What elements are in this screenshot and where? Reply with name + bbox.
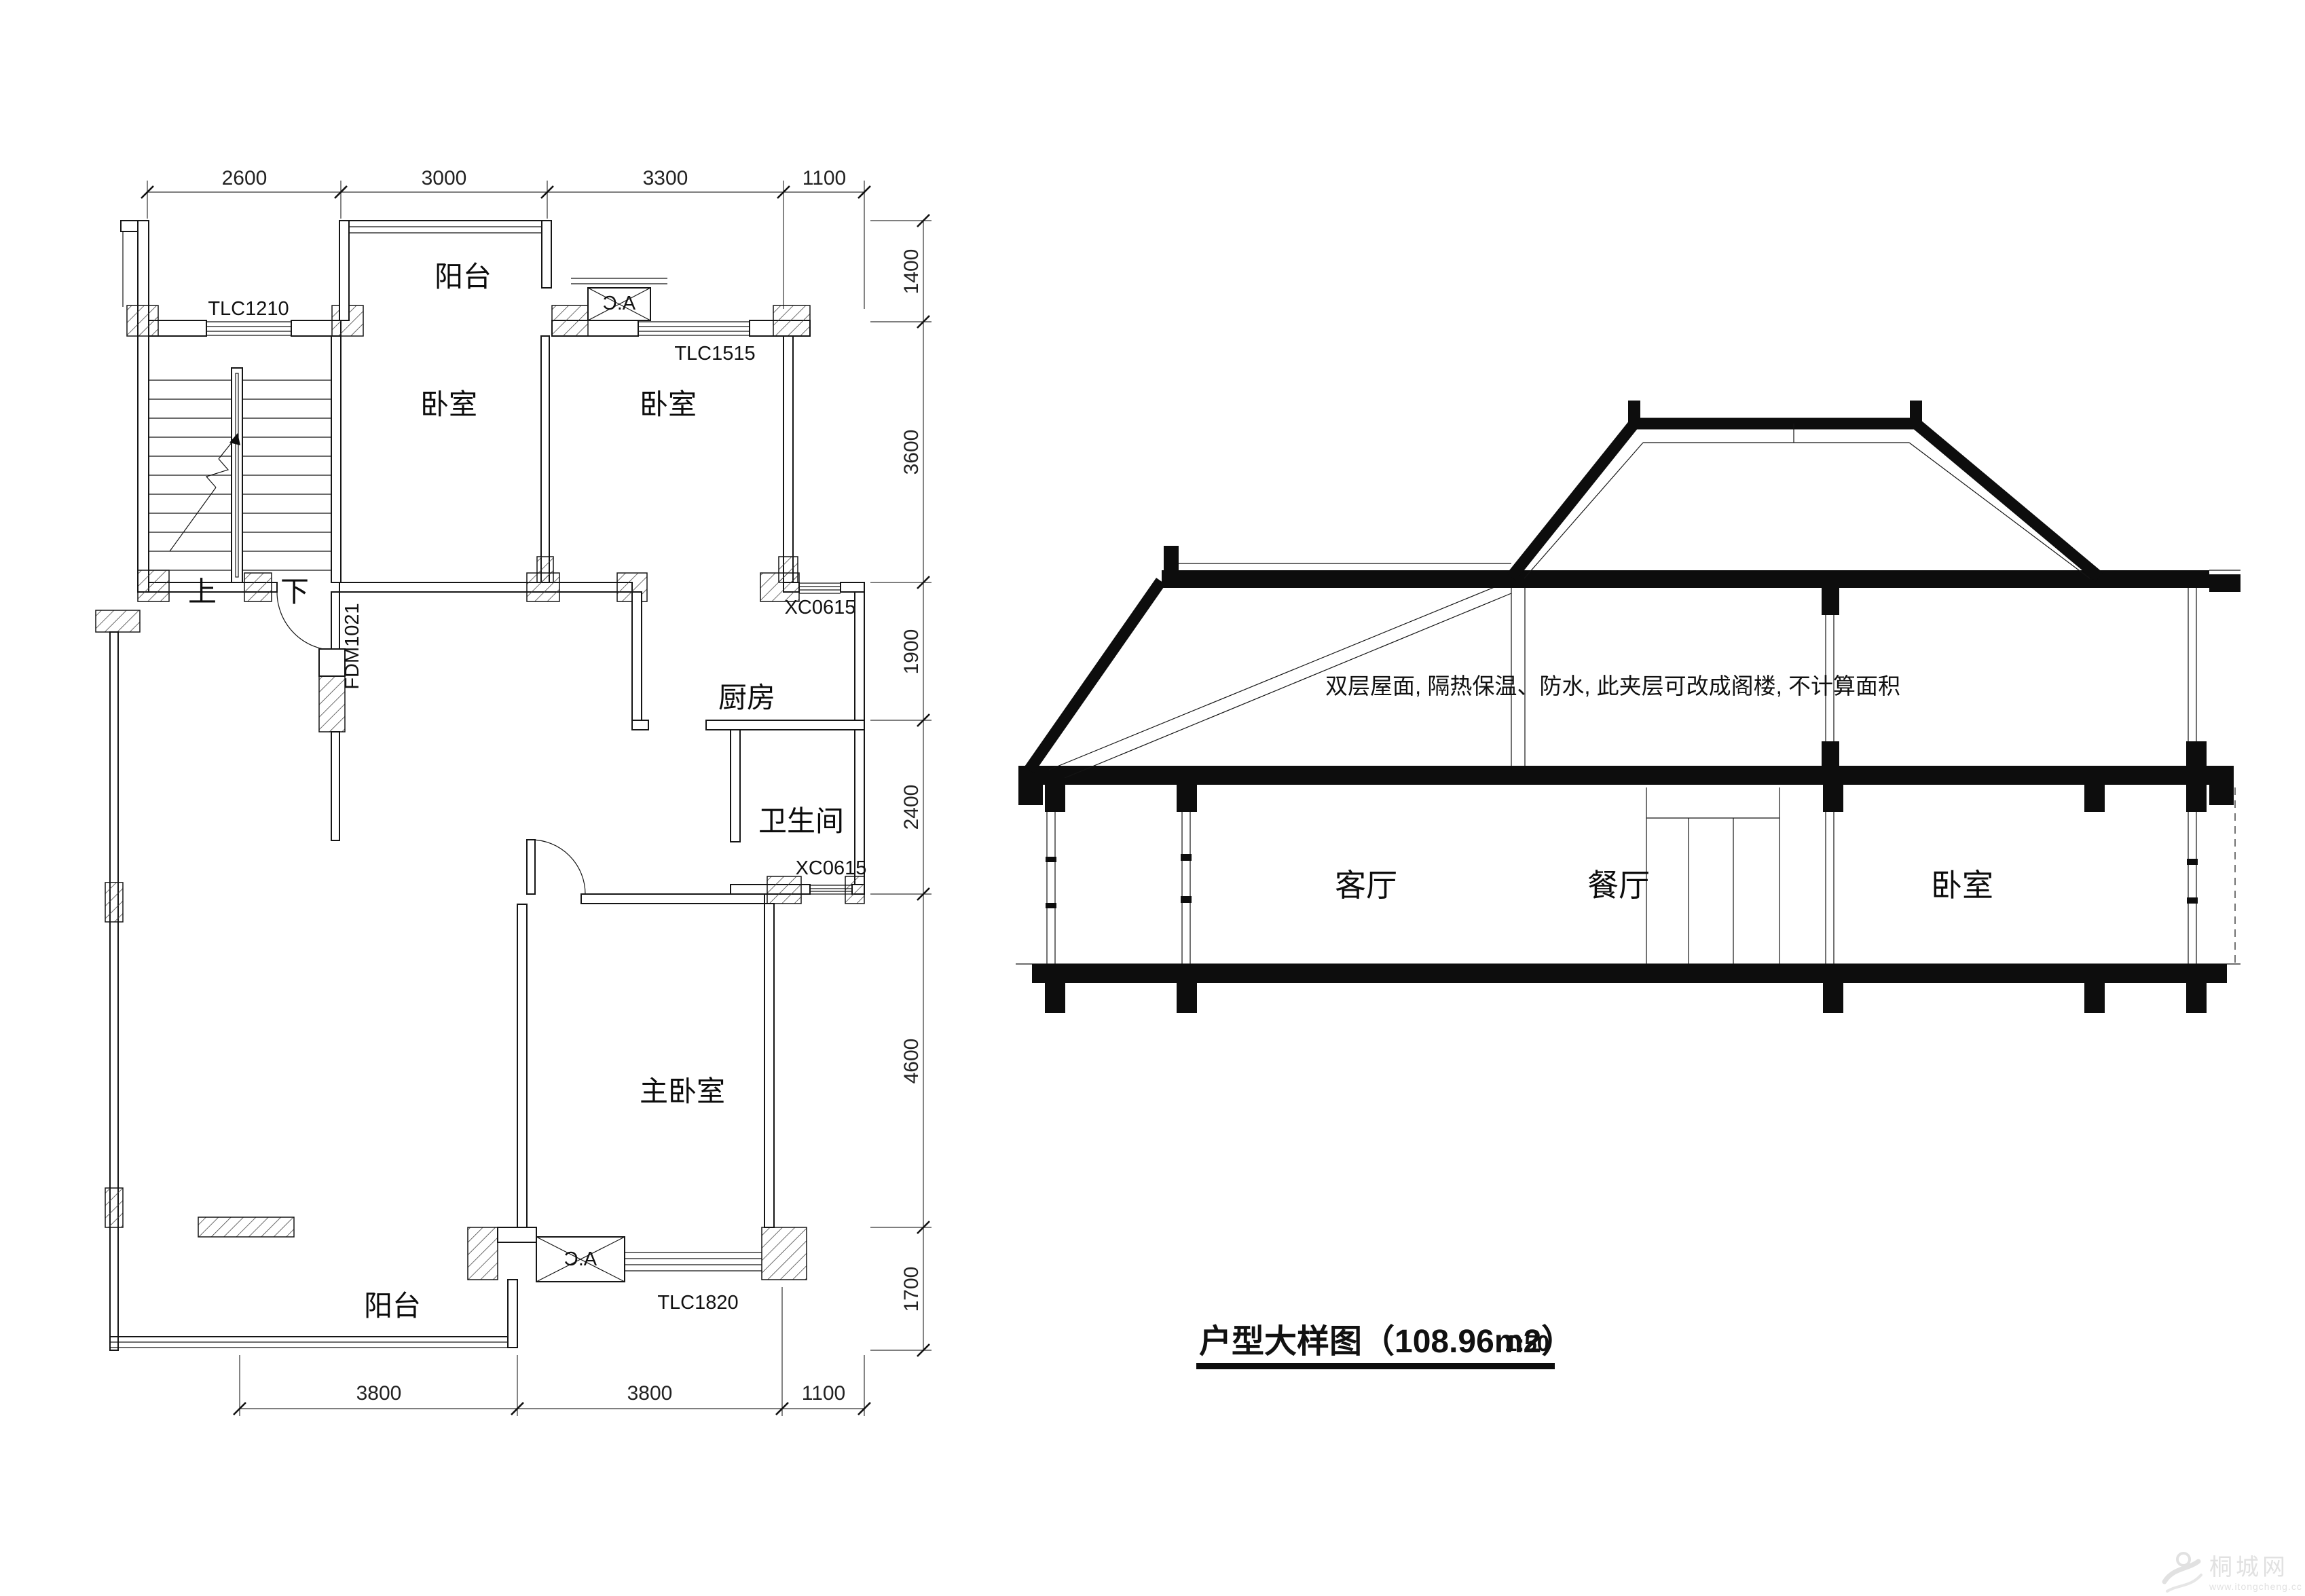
stair-down-label: 下 (280, 577, 309, 608)
watermark: 桐城网 www.itongcheng.cc (2164, 1553, 2302, 1592)
room-label-bedroom-left: 卧室 (420, 389, 477, 421)
dim-top-1: 2600 (222, 167, 268, 189)
master-door-leaf (527, 840, 535, 894)
window-label-tlc1210: TLC1210 (208, 298, 289, 320)
room-label-bedroom-right: 卧室 (640, 389, 697, 421)
kitchen: XC0615 厨房 (632, 573, 864, 894)
dim-bottom-1: 3800 (356, 1382, 402, 1405)
bedroom-divider-wall (541, 336, 549, 582)
section-room-bedroom: 卧室 (1931, 868, 1993, 903)
dim-top-4: 1100 (803, 167, 847, 189)
section-door (1646, 787, 1780, 964)
dim-right-3: 1900 (900, 629, 923, 675)
room-label-master-bedroom: 主卧室 (640, 1076, 725, 1108)
staircase: TLC1210 (121, 221, 363, 608)
drawing-scale: 1:50 (1505, 1331, 1549, 1356)
floor-plan: 2600 3000 3300 1100 1400 3600 1900 24 (96, 167, 932, 1416)
window-label-xc0615-top: XC0615 (785, 597, 856, 618)
window-label-tlc1515: TLC1515 (674, 343, 755, 365)
entry-door-fdm1021: FDM1021 (277, 592, 363, 840)
cad-canvas: 2600 3000 3300 1100 1400 3600 1900 24 (0, 0, 2305, 1596)
dimension-top: 2600 3000 3300 1100 (141, 167, 870, 309)
dim-top-2: 3000 (422, 167, 467, 189)
stair-direction-arrow (170, 433, 240, 551)
dim-right-6: 1700 (900, 1267, 923, 1312)
watermark-url: www.itongcheng.cc (2209, 1581, 2302, 1592)
door-label-fdm1021: FDM1021 (342, 603, 363, 689)
window-tlc1820 (625, 1252, 762, 1271)
room-label-balcony-bottom: 阳台 (364, 1291, 421, 1322)
ac-label-top: A.C (603, 293, 635, 314)
window-label-tlc1820: TLC1820 (657, 1292, 738, 1314)
title-block: 户型大样图（108.96m2） 1:50 (1196, 1324, 1574, 1369)
ac-label-bottom: A.C (564, 1248, 597, 1270)
ground-slab (1032, 964, 2227, 983)
drawing-sheet: 2600 3000 3300 1100 1400 3600 1900 24 (0, 0, 2305, 1596)
stair-up-label: 上 (188, 577, 217, 608)
title-underline (1196, 1363, 1555, 1369)
section-drawing: 双层屋面, 隔热保温、防水, 此夹层可改成阁楼, 不计算面积 客厅 餐厅 卧室 (1016, 401, 2241, 1013)
watermark-name: 桐城网 (2209, 1555, 2289, 1580)
dim-right-1: 1400 (900, 249, 923, 295)
window-tlc1210 (206, 322, 291, 335)
bedroom-right-east-wall (783, 336, 793, 582)
roof-note: 双层屋面, 隔热保温、防水, 此夹层可改成阁楼, 不计算面积 (1325, 673, 1900, 699)
dim-right-2: 3600 (900, 430, 923, 475)
dimension-right: 1400 3600 1900 2400 4600 1700 (870, 215, 932, 1356)
bedrooms-south-wall (339, 582, 632, 592)
top-roof (1511, 401, 2099, 578)
west-wall (96, 610, 140, 1350)
balcony-north-wall (198, 1217, 294, 1237)
room-label-kitchen: 厨房 (718, 683, 775, 714)
upper-slab (1162, 570, 2209, 588)
master-bedroom: 主卧室 A.C TLC1820 (198, 840, 807, 1314)
dim-bottom-2: 3800 (627, 1382, 673, 1405)
dim-bottom-3: 1100 (802, 1382, 846, 1405)
dim-right-4: 2400 (900, 785, 923, 830)
section-room-living: 客厅 (1335, 868, 1397, 903)
watermark-logo-icon (2164, 1553, 2201, 1591)
room-label-bathroom: 卫生间 (758, 806, 844, 838)
balcony-top: 阳台 (339, 221, 551, 320)
section-room-dining: 餐厅 (1587, 868, 1650, 903)
section-left-wall (1046, 787, 1056, 964)
dim-top-3: 3300 (643, 167, 688, 189)
balcony-bottom: 阳台 (110, 1280, 517, 1348)
dimension-bottom: 3800 3800 1100 (234, 1287, 870, 1416)
window-label-xc0615-bottom: XC0615 (796, 857, 867, 879)
room-label-balcony-top: 阳台 (435, 262, 492, 293)
bathroom: XC0615 卫生间 (731, 730, 866, 904)
stair-rail (232, 368, 242, 582)
dim-right-5: 4600 (900, 1039, 923, 1084)
window-xc0615-top (799, 583, 841, 593)
mid-slab (1018, 766, 2234, 785)
window-tlc1515 (638, 322, 750, 335)
section-living-window (1181, 787, 1192, 964)
door-leaf (331, 592, 339, 649)
